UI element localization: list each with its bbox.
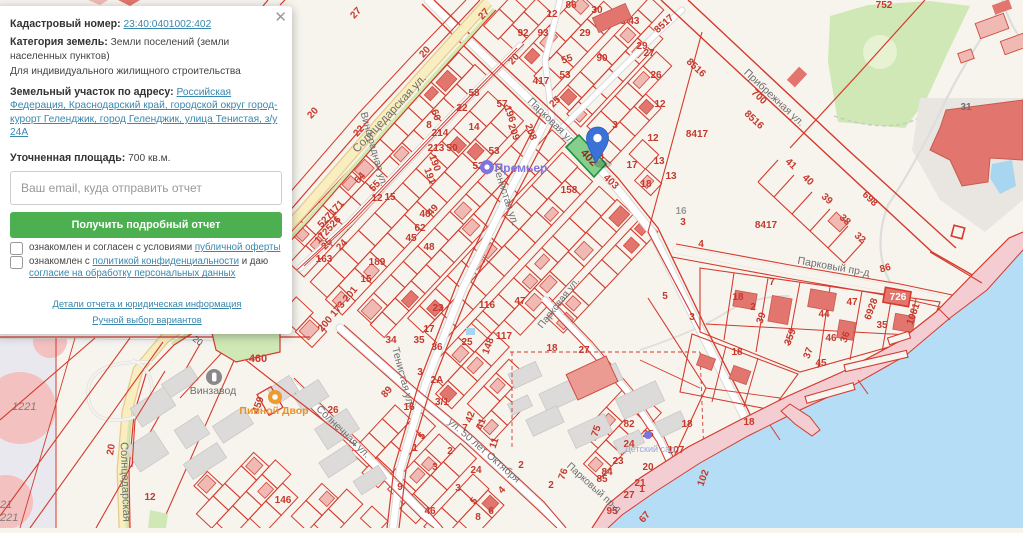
svg-text:29: 29 xyxy=(636,41,648,52)
svg-text:58: 58 xyxy=(468,88,480,99)
svg-text:8417: 8417 xyxy=(686,129,709,140)
svg-text:23: 23 xyxy=(612,456,624,467)
svg-text:93: 93 xyxy=(537,28,549,39)
svg-text:92: 92 xyxy=(517,28,529,39)
svg-text:Премьер: Премьер xyxy=(495,161,548,175)
svg-text:47: 47 xyxy=(846,297,858,308)
svg-text:3: 3 xyxy=(432,462,438,473)
svg-text:18: 18 xyxy=(546,343,558,354)
svg-text:417: 417 xyxy=(533,76,550,87)
svg-text:17: 17 xyxy=(423,324,435,335)
svg-text:2: 2 xyxy=(548,480,554,491)
svg-text:Пивной Двор: Пивной Двор xyxy=(239,405,308,417)
svg-text:116: 116 xyxy=(479,300,496,311)
svg-text:16: 16 xyxy=(675,206,687,217)
svg-text:12: 12 xyxy=(654,99,666,110)
svg-text:22: 22 xyxy=(456,103,468,114)
svg-text:12: 12 xyxy=(371,193,383,204)
svg-text:44: 44 xyxy=(818,309,830,320)
svg-text:8417: 8417 xyxy=(755,220,778,231)
svg-text:3: 3 xyxy=(680,217,686,228)
svg-text:189: 189 xyxy=(369,257,386,268)
svg-text:18: 18 xyxy=(731,347,743,358)
svg-text:90: 90 xyxy=(596,53,608,64)
svg-text:20: 20 xyxy=(642,462,654,473)
svg-text:46: 46 xyxy=(424,506,436,517)
svg-text:34: 34 xyxy=(385,335,397,346)
svg-text:3: 3 xyxy=(455,483,461,494)
svg-text:752: 752 xyxy=(876,0,893,11)
svg-text:726: 726 xyxy=(890,292,907,303)
svg-text:213: 213 xyxy=(428,143,445,154)
svg-text:45: 45 xyxy=(815,358,827,369)
svg-text:12: 12 xyxy=(546,9,558,20)
svg-text:82: 82 xyxy=(623,419,635,430)
svg-text:2: 2 xyxy=(518,460,524,471)
svg-text:85: 85 xyxy=(596,474,608,485)
svg-text:221: 221 xyxy=(0,512,18,524)
svg-text:18: 18 xyxy=(681,419,693,430)
svg-text:31: 31 xyxy=(960,102,972,113)
svg-text:35: 35 xyxy=(876,320,888,331)
svg-text:9: 9 xyxy=(397,482,403,493)
svg-text:4: 4 xyxy=(698,239,704,250)
svg-text:13: 13 xyxy=(653,156,665,167)
svg-text:117: 117 xyxy=(496,331,513,342)
svg-text:18: 18 xyxy=(732,292,744,303)
svg-text:35: 35 xyxy=(413,335,425,346)
svg-text:3: 3 xyxy=(612,120,618,131)
svg-text:29: 29 xyxy=(579,28,591,39)
svg-text:86: 86 xyxy=(565,0,577,11)
svg-text:2А: 2А xyxy=(431,375,444,386)
svg-text:7: 7 xyxy=(769,277,775,288)
svg-text:163: 163 xyxy=(316,254,333,265)
svg-text:158: 158 xyxy=(561,185,578,196)
svg-text:27: 27 xyxy=(623,490,635,501)
svg-text:18: 18 xyxy=(640,179,652,190)
svg-text:Винзавод: Винзавод xyxy=(190,385,237,397)
svg-text:6: 6 xyxy=(488,506,494,517)
svg-text:26: 26 xyxy=(650,70,662,81)
svg-text:46: 46 xyxy=(825,333,837,344)
svg-text:53: 53 xyxy=(559,70,571,81)
svg-text:3/1: 3/1 xyxy=(435,397,449,408)
svg-text:12: 12 xyxy=(647,133,659,144)
svg-text:5: 5 xyxy=(662,291,668,302)
svg-text:21: 21 xyxy=(634,478,646,489)
svg-text:62: 62 xyxy=(414,223,426,234)
svg-text:2: 2 xyxy=(750,302,756,313)
svg-text:Детский сад: Детский сад xyxy=(625,444,676,454)
svg-text:14: 14 xyxy=(468,122,480,133)
svg-text:3: 3 xyxy=(417,367,423,378)
svg-text:48: 48 xyxy=(423,242,435,253)
svg-text:50: 50 xyxy=(446,143,458,154)
svg-text:57: 57 xyxy=(496,99,508,110)
svg-text:3: 3 xyxy=(689,312,695,323)
svg-text:36: 36 xyxy=(431,342,443,353)
svg-text:45: 45 xyxy=(405,233,417,244)
svg-text:21: 21 xyxy=(0,499,12,511)
svg-text:8: 8 xyxy=(475,512,481,523)
svg-text:27: 27 xyxy=(578,345,590,356)
svg-text:214: 214 xyxy=(432,128,449,139)
svg-text:146: 146 xyxy=(275,495,292,506)
svg-text:2: 2 xyxy=(447,446,453,457)
svg-text:23: 23 xyxy=(432,303,444,314)
svg-text:53: 53 xyxy=(488,146,500,157)
svg-text:15: 15 xyxy=(360,274,372,285)
svg-text:17: 17 xyxy=(626,160,638,171)
svg-text:12: 12 xyxy=(144,492,156,503)
svg-text:25: 25 xyxy=(461,337,473,348)
svg-text:15: 15 xyxy=(384,192,396,203)
svg-text:18: 18 xyxy=(743,417,755,428)
svg-text:47: 47 xyxy=(514,296,526,307)
svg-text:24: 24 xyxy=(470,465,482,476)
svg-text:13: 13 xyxy=(665,171,677,182)
svg-text:1: 1 xyxy=(412,443,418,454)
svg-text:460: 460 xyxy=(249,353,267,365)
